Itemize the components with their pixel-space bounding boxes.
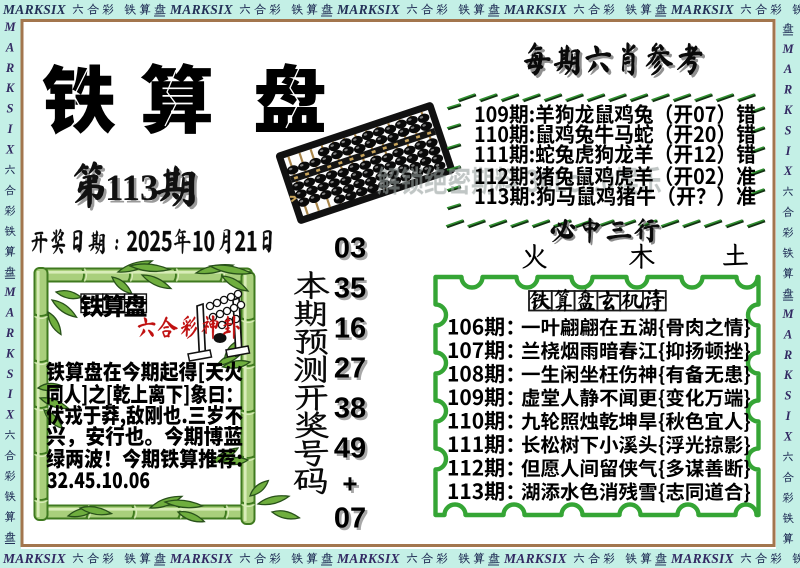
svg-text:M: M	[781, 307, 794, 321]
svg-text:S: S	[785, 123, 792, 137]
svg-text:MARKSIX: MARKSIX	[336, 551, 401, 566]
svg-text:R: R	[783, 348, 792, 362]
svg-text:07: 07	[334, 503, 366, 535]
svg-text:38: 38	[334, 393, 366, 425]
svg-text:M: M	[3, 20, 16, 34]
svg-text:113: 113	[105, 168, 158, 209]
svg-text:MARKSIX: MARKSIX	[670, 2, 735, 17]
svg-text:X: X	[5, 142, 15, 156]
svg-text:S: S	[7, 102, 14, 116]
svg-text:A: A	[783, 327, 792, 341]
svg-text:A: A	[783, 62, 792, 76]
svg-text:27: 27	[334, 353, 366, 385]
svg-text:X: X	[5, 408, 15, 422]
svg-text:49: 49	[334, 433, 366, 465]
svg-text:S: S	[785, 389, 792, 403]
svg-text:M: M	[781, 42, 794, 56]
svg-text:A: A	[5, 40, 14, 54]
svg-text:16: 16	[334, 313, 366, 345]
svg-text:M: M	[3, 285, 16, 299]
svg-text:MARKSIX: MARKSIX	[336, 2, 401, 17]
svg-text:MARKSIX: MARKSIX	[2, 551, 67, 566]
svg-text:X: X	[783, 429, 793, 443]
svg-text:R: R	[5, 326, 14, 340]
svg-text:MARKSIX: MARKSIX	[503, 2, 568, 17]
svg-text:S: S	[7, 367, 14, 381]
svg-text:MARKSIX: MARKSIX	[2, 2, 67, 17]
svg-text:MARKSIX: MARKSIX	[503, 551, 568, 566]
svg-text:A: A	[5, 306, 14, 320]
svg-text:MARKSIX: MARKSIX	[670, 551, 735, 566]
svg-text:X: X	[783, 164, 793, 178]
svg-text:+: +	[342, 469, 357, 499]
svg-text:03: 03	[334, 233, 366, 265]
svg-text:R: R	[783, 83, 792, 97]
svg-text:R: R	[5, 61, 14, 75]
svg-text:MARKSIX: MARKSIX	[169, 2, 234, 17]
svg-text:35: 35	[334, 273, 366, 305]
svg-text:MARKSIX: MARKSIX	[169, 551, 234, 566]
